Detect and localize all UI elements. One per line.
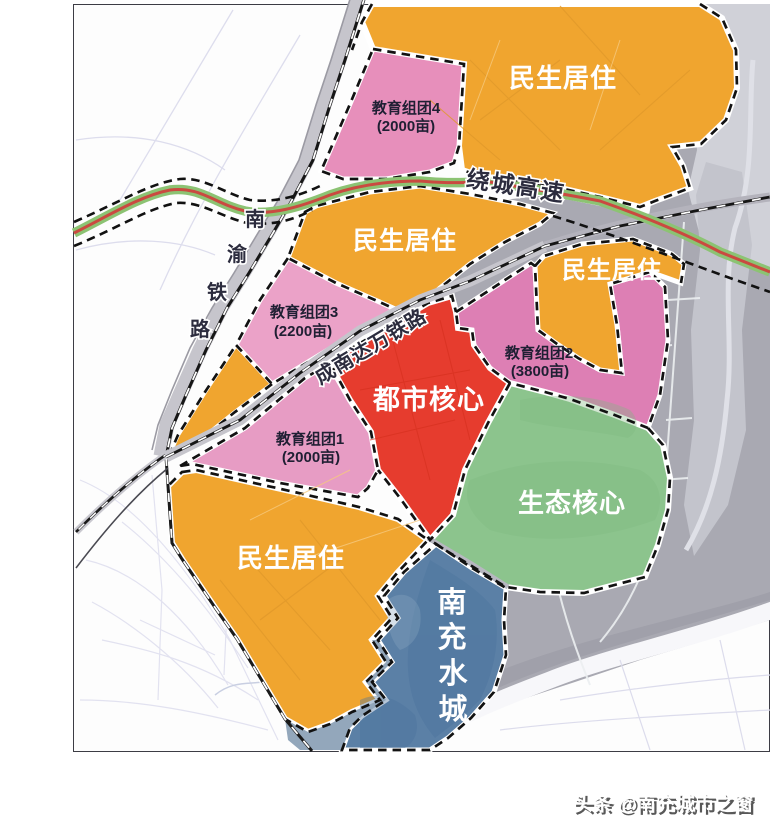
svg-text:教育组团1: 教育组团1 [275,430,344,448]
svg-text:教育组团2: 教育组团2 [504,344,573,362]
svg-text:头条 @南充城市之窗: 头条 @南充城市之窗 [573,792,753,815]
svg-text:民生居住: 民生居住 [353,226,457,255]
svg-text:都市核心: 都市核心 [372,384,485,415]
svg-text:路: 路 [190,317,211,341]
svg-text:生态核心: 生态核心 [518,488,626,518]
svg-text:南: 南 [245,208,265,231]
svg-text:(2000亩): (2000亩) [282,448,340,466]
svg-text:南: 南 [437,586,466,619]
svg-text:城: 城 [438,693,467,726]
svg-text:(2200亩): (2200亩) [274,322,332,340]
svg-text:民生居住: 民生居住 [509,63,617,93]
svg-text:教育组团3: 教育组团3 [269,303,338,321]
svg-text:水: 水 [438,657,468,690]
svg-text:民生居住: 民生居住 [237,543,345,573]
svg-text:(3800亩): (3800亩) [511,362,569,380]
svg-text:充: 充 [437,621,466,654]
svg-text:铁: 铁 [207,280,227,304]
svg-text:教育组团4: 教育组团4 [371,99,441,117]
svg-text:渝: 渝 [227,242,248,266]
svg-text:(2000亩): (2000亩) [377,117,435,135]
svg-text:民生居住: 民生居住 [562,256,662,284]
